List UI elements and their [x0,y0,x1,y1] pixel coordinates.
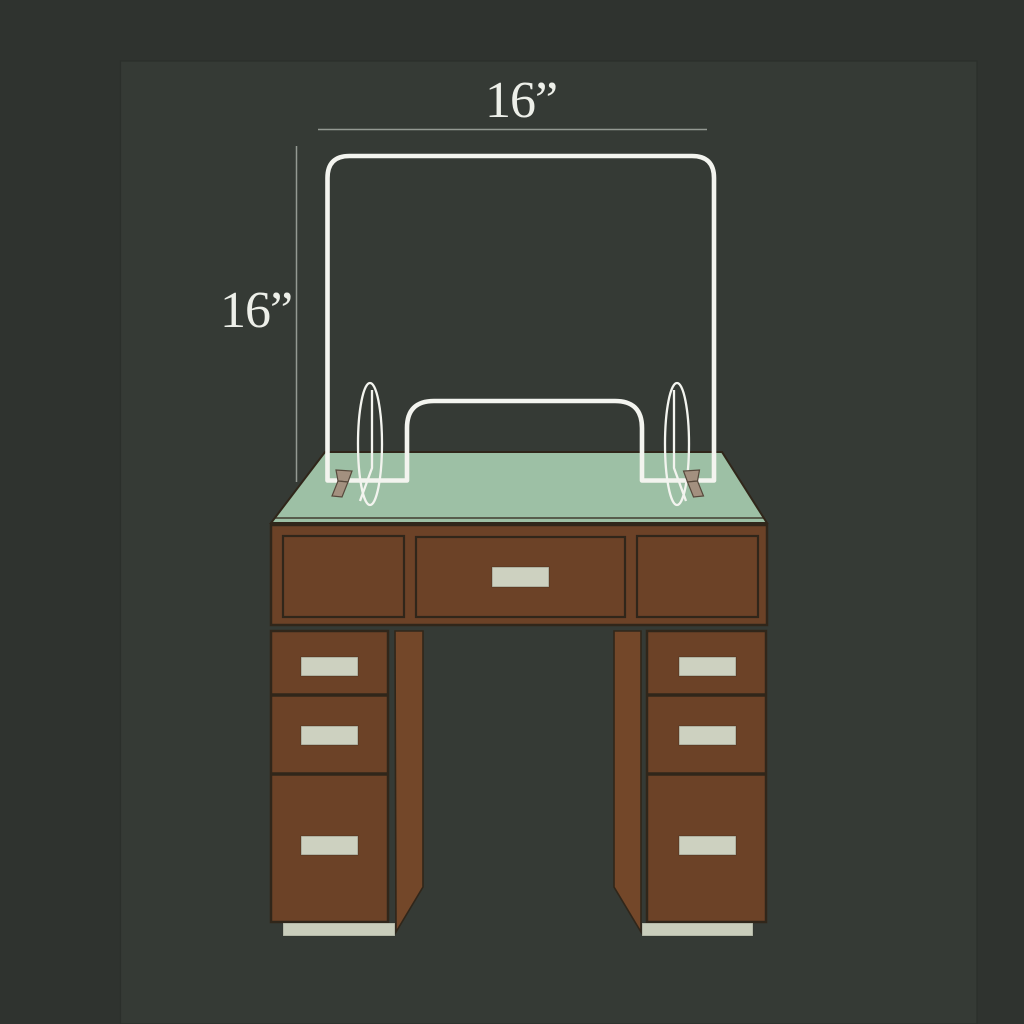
height-dimension-label: 16” [220,282,292,339]
left-drawer-3-handle [301,836,358,855]
width-dimension-label: 16” [485,72,557,129]
product-dimension-diagram: 16” 16” [0,0,1024,1024]
right-pedestal-foot [642,923,753,936]
left-pedestal-foot [283,923,395,936]
center-drawer-handle [492,567,549,587]
apron-left-panel [283,536,404,617]
left-pedestal-inner-side [395,631,423,932]
left-drawer-1-handle [301,657,358,676]
right-pedestal-inner-side [614,631,641,932]
right-drawer-1-handle [679,657,736,676]
right-drawer-3-handle [679,836,736,855]
left-drawer-2-handle [301,726,358,745]
right-drawer-2-handle [679,726,736,745]
apron-right-panel [637,536,758,617]
illustration-stage: 16” 16” [0,0,1024,1024]
